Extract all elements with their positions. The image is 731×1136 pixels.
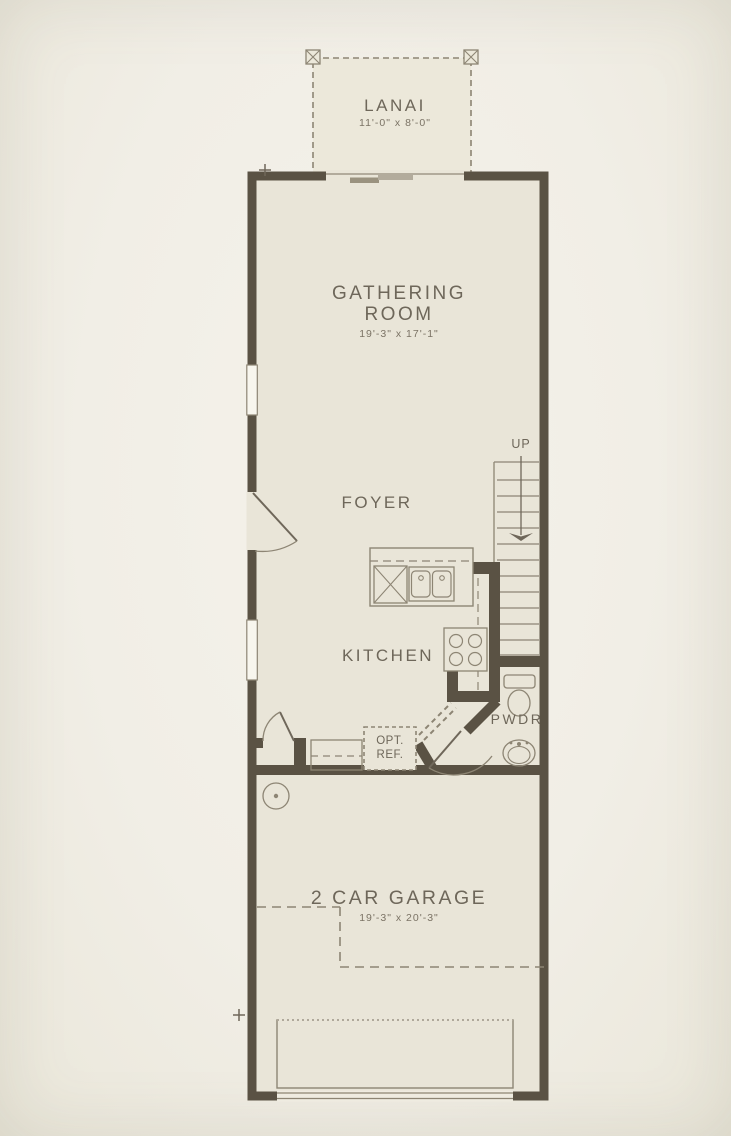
- garage-label: 2 CAR GARAGE 19'-3" x 20'-3": [311, 888, 487, 925]
- foyer-label: FOYER: [341, 493, 412, 512]
- room-name: KITCHEN: [342, 646, 434, 665]
- room-name: GATHERING ROOM: [319, 283, 479, 326]
- lanai-label: LANAI 11'-0" x 8'-0": [359, 96, 431, 130]
- stove-icon: [444, 628, 487, 671]
- powder-room-label: PWDR: [491, 712, 544, 728]
- opt-ref-line2: REF.: [376, 748, 404, 762]
- opt-ref-line1: OPT.: [376, 734, 404, 748]
- dimension-marker-plus: [233, 1009, 245, 1021]
- window-icon: [247, 620, 257, 680]
- optional-refrigerator-label: OPT. REF.: [376, 734, 404, 763]
- gathering-room-label: GATHERING ROOM 19'-3" x 17'-1": [319, 283, 479, 340]
- room-dimension: 19'-3" x 20'-3": [311, 913, 487, 925]
- room-dimension: 11'-0" x 8'-0": [359, 118, 431, 130]
- floor-plan: LANAI 11'-0" x 8'-0" GATHERING ROOM 19'-…: [0, 0, 731, 1136]
- up-text: UP: [511, 437, 530, 451]
- lanai-post-right-icon: [464, 50, 478, 64]
- window-icon: [247, 365, 257, 415]
- lanai-post-left-icon: [306, 50, 320, 64]
- kitchen-label: KITCHEN: [342, 646, 434, 665]
- room-name: FOYER: [341, 493, 412, 512]
- stairs-up-label: UP: [511, 437, 530, 451]
- sliding-glass-door-icon: [326, 170, 464, 183]
- room-name: LANAI: [359, 96, 431, 115]
- room-name: PWDR: [491, 712, 544, 728]
- room-name: 2 CAR GARAGE: [311, 888, 487, 910]
- floorplan-drawing: [0, 0, 731, 1136]
- room-dimension: 19'-3" x 17'-1": [319, 329, 479, 341]
